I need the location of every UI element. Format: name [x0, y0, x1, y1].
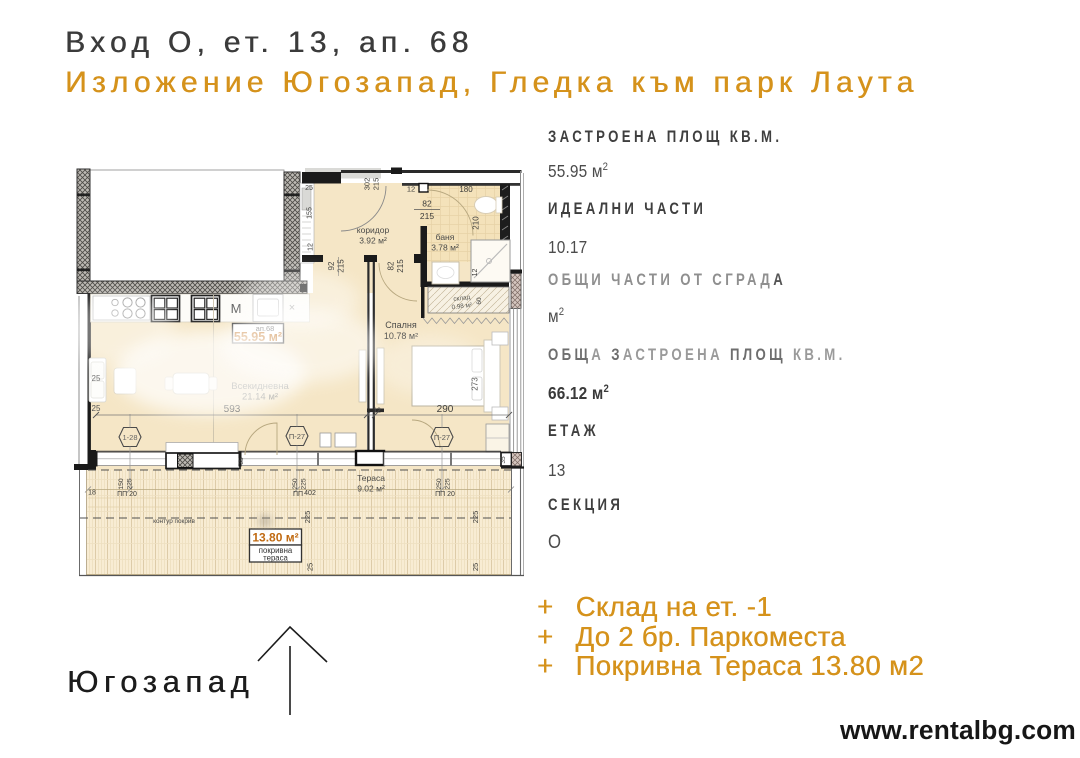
svg-text:П-27: П-27 — [434, 433, 450, 442]
svg-text:82: 82 — [387, 261, 396, 270]
svg-text:3.92 м²: 3.92 м² — [359, 236, 387, 246]
svg-text:215: 215 — [337, 259, 346, 273]
svg-text:225: 225 — [301, 478, 308, 490]
svg-text:25: 25 — [92, 374, 101, 383]
svg-text:402: 402 — [304, 490, 316, 497]
svg-text:25: 25 — [305, 185, 313, 192]
svg-text:18: 18 — [88, 490, 96, 497]
svg-text:тераса: тераса — [263, 554, 288, 563]
svg-text:П-27: П-27 — [289, 432, 305, 441]
svg-text:Спалня: Спалня — [385, 320, 417, 330]
svg-text:контур покрив: контур покрив — [153, 518, 195, 525]
svg-text:13.80 м²: 13.80 м² — [252, 531, 298, 545]
svg-text:302: 302 — [363, 178, 372, 191]
svg-text:ПП 20: ПП 20 — [117, 491, 137, 498]
svg-text:250: 250 — [436, 478, 443, 490]
svg-text:25: 25 — [92, 404, 101, 413]
svg-text:92: 92 — [327, 261, 336, 270]
svg-text:ПП: ПП — [293, 491, 303, 498]
svg-text:290: 290 — [437, 404, 454, 415]
svg-text:3.78 м²: 3.78 м² — [431, 243, 459, 253]
svg-text:155: 155 — [307, 207, 314, 219]
svg-text:M: M — [231, 301, 242, 316]
svg-text:12: 12 — [308, 243, 315, 251]
svg-text:82: 82 — [422, 199, 432, 209]
svg-text:60: 60 — [476, 297, 483, 305]
svg-text:225: 225 — [471, 511, 480, 524]
svg-text:225: 225 — [127, 478, 134, 490]
svg-text:250: 250 — [292, 478, 299, 490]
svg-text:12: 12 — [407, 185, 415, 194]
svg-text:180: 180 — [459, 185, 473, 194]
svg-text:25: 25 — [471, 563, 480, 571]
svg-text:215: 215 — [372, 178, 381, 191]
svg-text:Тераса: Тераса — [357, 473, 385, 483]
svg-text:12: 12 — [472, 269, 479, 277]
svg-text:150: 150 — [118, 478, 125, 490]
svg-text:ПП 20: ПП 20 — [435, 491, 455, 498]
svg-text:коридор: коридор — [357, 225, 390, 235]
svg-text:35: 35 — [238, 457, 245, 465]
svg-text:215: 215 — [420, 211, 434, 221]
svg-text:225: 225 — [303, 511, 312, 524]
svg-text:9.02 м²: 9.02 м² — [357, 484, 385, 494]
svg-text:1-28: 1-28 — [122, 433, 137, 442]
svg-text:35: 35 — [500, 456, 507, 464]
svg-text:215: 215 — [396, 259, 405, 273]
svg-text:25: 25 — [306, 563, 315, 571]
svg-text:210: 210 — [472, 216, 481, 230]
svg-text:225: 225 — [445, 478, 452, 490]
svg-text:12: 12 — [373, 408, 381, 415]
svg-text:баня: баня — [436, 232, 455, 242]
